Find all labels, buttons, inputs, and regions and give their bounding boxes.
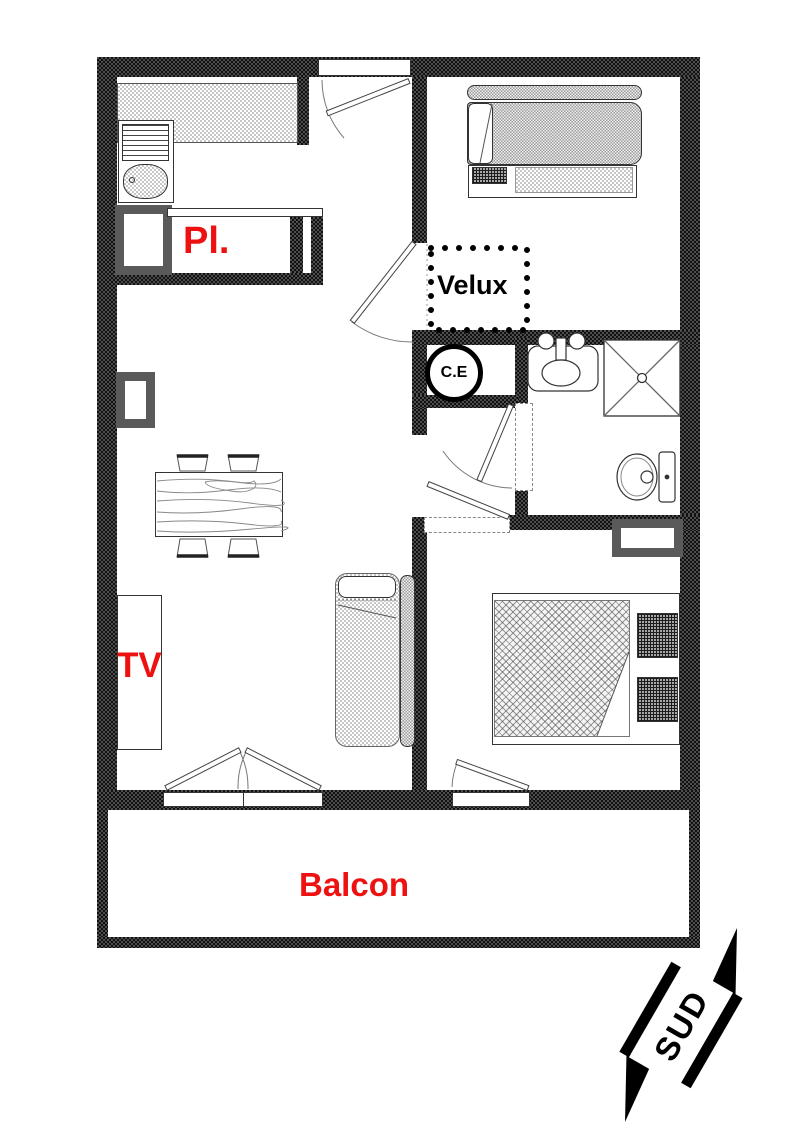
floor-plan: SUD C.E Pl. Velux TV Balcon	[0, 0, 802, 1134]
sofa-bed-mattress	[335, 573, 400, 747]
balcony-french-doors	[165, 748, 321, 790]
wall-closet-stub2	[311, 215, 323, 273]
entrance-door-sill	[318, 59, 411, 76]
living-radiator	[116, 372, 155, 428]
wall-right	[680, 77, 700, 810]
balcony-wall-left	[97, 810, 108, 948]
wall-closet-stub1	[290, 215, 303, 273]
bed1-mattress	[467, 102, 642, 165]
bed1-blanket	[515, 167, 633, 193]
dining-table	[155, 472, 283, 537]
water-heater-label: C.E	[441, 364, 468, 382]
kitchen-fridge	[115, 205, 172, 275]
sofa-bed-pillow	[338, 576, 396, 598]
wall-center-b1	[412, 345, 427, 435]
bed2-mattress	[494, 600, 630, 737]
balcony-french-door-sill-left	[163, 792, 244, 807]
shower	[604, 340, 680, 416]
sofa-bed-backrest	[400, 575, 415, 747]
closet-shelf	[167, 208, 323, 217]
balcony-wall-right	[689, 810, 700, 948]
bathroom-door-pocket	[515, 403, 533, 491]
balcony-french-door-sill-right	[243, 792, 323, 807]
bed1-bench	[472, 167, 507, 184]
balcony-wall-bottom	[97, 937, 700, 948]
wall-center-upper	[412, 77, 427, 243]
toilet	[617, 452, 675, 502]
water-heater: C.E	[425, 344, 483, 402]
kitchen-sink-basin	[123, 164, 168, 199]
bedroom2-radiator	[612, 519, 683, 557]
balcony-label: Balcon	[299, 866, 409, 904]
bed2-pillow-2	[637, 677, 678, 722]
bed2-pillow-1	[637, 613, 678, 658]
entrance-door	[322, 79, 410, 138]
wall-bath-stub	[515, 490, 528, 517]
bedroom2-doorway	[424, 517, 510, 533]
closet-label: Pl.	[183, 220, 229, 263]
bed1-bolster	[467, 85, 642, 100]
compass-south-label: SUD	[646, 983, 716, 1067]
velux-label: Velux	[437, 270, 508, 301]
bedroom2-balcony-door	[452, 760, 529, 791]
wall-kitchen-stub	[297, 77, 309, 145]
wall-mid-horizontal	[412, 330, 700, 345]
wall-ce-right	[515, 338, 528, 403]
bedroom2-balcony-door-sill	[452, 792, 530, 807]
tv-label: TV	[117, 646, 162, 686]
wall-left	[97, 77, 117, 810]
kitchen-drainer	[122, 124, 169, 161]
bed1-pillow	[468, 103, 493, 164]
hallway-doors	[427, 404, 513, 519]
bedroom1-door	[350, 241, 427, 342]
